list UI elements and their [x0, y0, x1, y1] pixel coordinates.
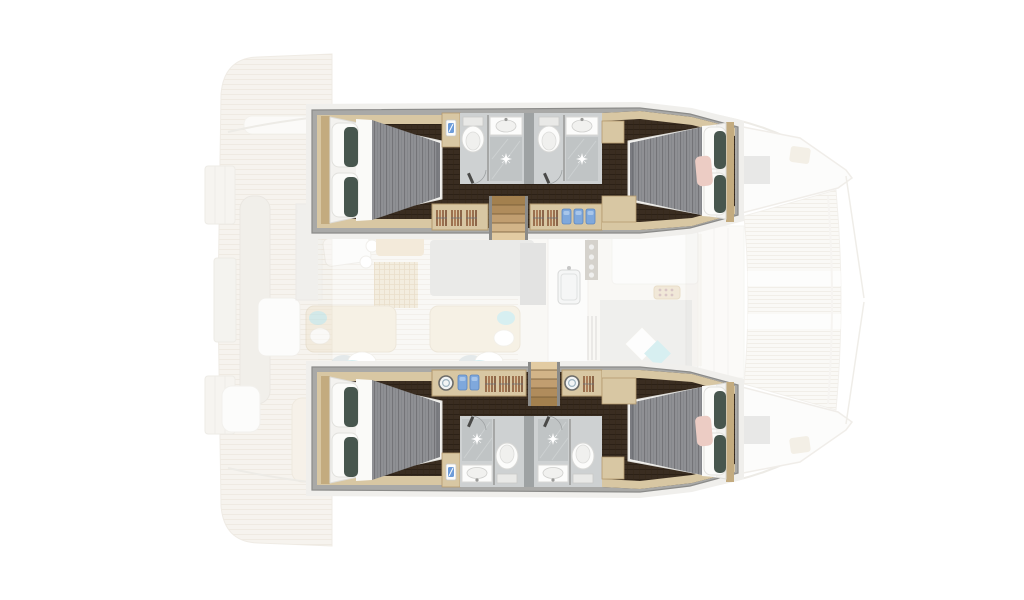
companionway-port	[489, 196, 528, 240]
area-rug	[374, 262, 418, 308]
foredeck-strip	[700, 226, 744, 378]
starboard-heads	[460, 416, 602, 487]
cabin-fwd-starboard	[602, 370, 735, 489]
companionway-starboard	[528, 362, 560, 406]
cabin-fwd-port	[602, 111, 735, 230]
towel-icon	[586, 209, 595, 224]
wardrobe-stbd-fwd	[562, 370, 602, 396]
galley-counter	[548, 236, 588, 378]
floor-plan-canvas	[0, 0, 1024, 600]
floor-plan-drawing	[0, 0, 1024, 600]
galley-island	[520, 243, 546, 305]
towel-icon	[574, 209, 583, 224]
lamp-icon	[446, 464, 456, 480]
saloon-table	[430, 240, 534, 296]
towel-icon	[562, 209, 571, 224]
trampoline	[740, 186, 852, 414]
cockpit-table	[258, 298, 300, 356]
towel-icon	[458, 375, 467, 390]
bathroom-fwd-port	[536, 115, 600, 184]
galley-stove	[585, 240, 598, 280]
bathroom-aft-port	[460, 115, 524, 184]
wardrobe-port-fwd	[530, 204, 602, 230]
deck-hatch-starboard	[744, 416, 770, 444]
bathroom-fwd-starboard	[536, 416, 600, 485]
nightstand	[602, 121, 624, 143]
transom-locker	[214, 258, 236, 342]
keypad	[654, 286, 680, 299]
nightstand	[602, 457, 624, 479]
chaise-lounge-aft-right	[430, 306, 520, 352]
swim-platform-port	[205, 166, 235, 224]
wardrobe-port-aft	[432, 204, 488, 230]
aft-seat	[222, 386, 260, 432]
chaise-lounge-aft-left	[306, 306, 396, 352]
dinette-chair	[360, 256, 372, 268]
deck-hatch-port	[744, 156, 770, 184]
porthole-icon	[439, 376, 453, 390]
bridle-lines	[846, 176, 864, 424]
towel-icon	[470, 375, 479, 390]
bathroom-aft-starboard	[460, 416, 524, 485]
saloon	[306, 230, 702, 380]
lamp-icon	[446, 120, 456, 136]
bow-pad-starboard	[789, 436, 811, 455]
starboard-hull	[306, 361, 744, 498]
bench	[602, 196, 636, 222]
lounge-right	[600, 230, 698, 376]
bench	[602, 378, 636, 404]
port-hull	[306, 102, 744, 240]
porthole-icon	[565, 376, 579, 390]
port-heads	[460, 113, 602, 184]
bow-pad-port	[789, 146, 811, 165]
wardrobe-stbd-aft	[432, 370, 526, 396]
